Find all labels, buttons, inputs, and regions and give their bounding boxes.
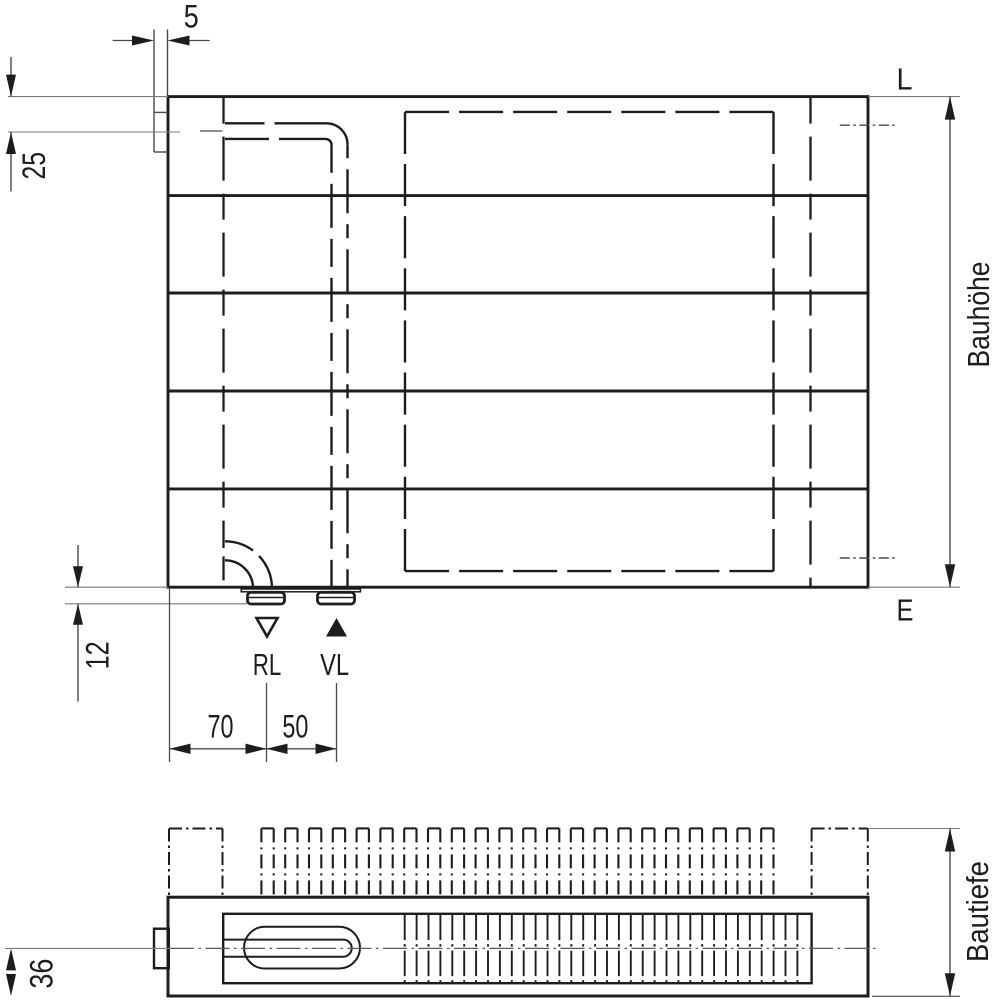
svg-text:L: L <box>897 62 913 97</box>
svg-text:Bautiefe: Bautiefe <box>960 861 995 962</box>
svg-text:5: 5 <box>184 0 199 35</box>
svg-text:RL: RL <box>253 647 282 682</box>
svg-text:70: 70 <box>208 709 234 745</box>
svg-text:36: 36 <box>23 959 59 989</box>
svg-text:12: 12 <box>80 641 116 669</box>
svg-text:VL: VL <box>320 647 349 682</box>
svg-text:50: 50 <box>282 709 308 745</box>
svg-text:25: 25 <box>16 152 52 180</box>
svg-text:E: E <box>897 592 914 627</box>
svg-text:Bauhöhe: Bauhöhe <box>961 262 996 368</box>
